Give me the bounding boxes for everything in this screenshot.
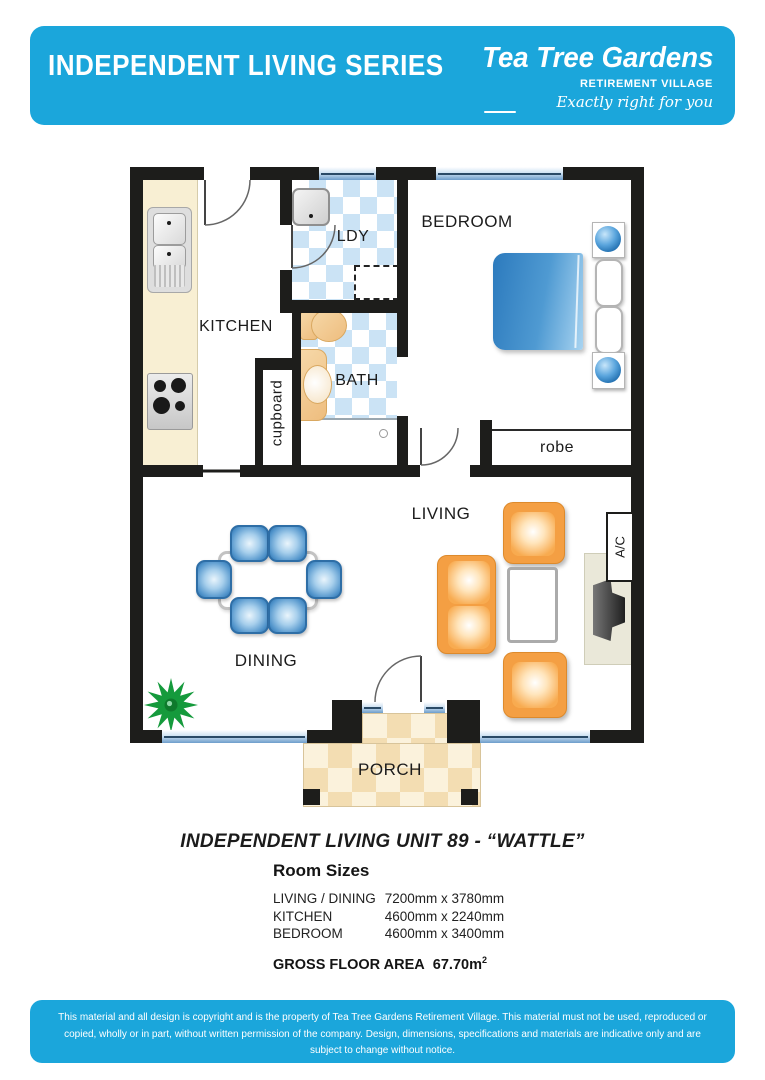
room-label-laundry: LDY [337,228,370,246]
wall-segment [280,300,408,313]
dining-window [162,730,307,743]
lamp-icon [595,226,621,252]
bedside-table [595,259,623,307]
room-size-row: BEDROOM 4600mm x 3400mm [273,925,504,943]
coffee-table [507,567,558,643]
armchair [503,502,565,564]
page-title: INDEPENDENT LIVING SERIES [48,50,444,83]
room-label-kitchen: KITCHEN [199,318,273,336]
robe-wall-stub [480,420,492,465]
header-banner: INDEPENDENT LIVING SERIES Tea Tree Garde… [30,26,735,125]
room-label-robe: robe [540,439,574,457]
window-line [482,736,588,738]
room-size-name: LIVING / DINING [273,890,381,908]
window-line [426,707,443,709]
burner-icon [154,380,166,392]
washing-machine [292,188,330,226]
burner-icon [175,401,185,411]
kitchen-sink [147,207,192,293]
porch-corner-post [303,789,320,805]
bedroom-door-arc [421,428,458,465]
logo-name: Tea Tree Gardens [482,42,713,75]
wall-segment [376,167,436,180]
ac-label: A/C [613,536,628,558]
bedroom-window [436,167,563,180]
porch-entry-floor [362,713,449,745]
wall-right [631,167,644,743]
washer-knob [309,214,313,218]
entry-sidelight-window [424,702,445,713]
dining-chair [268,597,307,634]
wall-segment [292,313,301,465]
entry-door-arc [375,656,421,702]
wall-segment [130,730,162,743]
room-label-dining: DINING [235,651,298,671]
dining-chair [196,560,232,599]
tv-icon [593,579,625,641]
dining-chair [306,560,342,599]
wall-segment [240,465,420,477]
dining-chair [230,525,269,562]
window-line [321,173,374,175]
room-size-value: 7200mm x 3780mm [385,891,504,906]
shower-drain [379,429,388,438]
burner-icon [171,378,186,393]
gross-floor-area: GROSS FLOOR AREA 67.70m2 [273,955,487,973]
wall-segment [280,180,292,225]
room-size-value: 4600mm x 3400mm [385,926,504,941]
brochure-page: INDEPENDENT LIVING SERIES Tea Tree Garde… [0,0,765,1080]
window-line [164,736,305,738]
footer-banner: This material and all design is copyrigh… [30,1000,735,1063]
room-size-name: BEDROOM [273,925,381,943]
wash-basin [303,365,332,404]
sofa-cushion [448,561,490,604]
wall-segment [250,167,319,180]
toilet-bowl [311,309,347,342]
armchair [503,652,567,718]
room-size-row: LIVING / DINING 7200mm x 3780mm [273,890,504,908]
shower-base [301,418,397,467]
hot-water-unit [354,265,399,300]
entry-sidelight-window [362,702,383,713]
burner-icon [153,397,170,414]
room-label-bedroom: BEDROOM [421,212,512,232]
bedside-lamp [592,352,625,389]
wall-segment [255,358,263,465]
disclaimer-text: This material and all design is copyrigh… [56,1010,709,1060]
gross-superscript: 2 [482,955,487,965]
room-size-row: KITCHEN 4600mm x 2240mm [273,908,504,926]
bedside-lamp [592,222,625,258]
wall-segment [397,416,408,465]
unit-title: INDEPENDENT LIVING UNIT 89 - “WATTLE” [0,831,765,853]
porch-post [447,700,480,743]
dining-chair [230,597,269,634]
wall-left [130,167,143,743]
bed [493,253,583,350]
sink-bowl [153,213,186,245]
room-sizes-heading: Room Sizes [273,861,369,881]
room-label-cupboard: cupboard [269,380,286,447]
sink-drainer [154,265,185,287]
sofa-cushion [448,606,490,649]
gross-value: 67.70m [433,957,482,973]
air-conditioner: A/C [606,512,634,582]
porch-post [332,700,362,743]
room-size-value: 4600mm x 2240mm [385,909,504,924]
room-label-porch: PORCH [358,760,422,780]
porch-corner-post [461,789,478,805]
window-line [364,707,381,709]
wall-segment [397,180,408,357]
laundry-window [319,167,376,180]
room-label-living: LIVING [412,504,471,524]
wall-segment [470,465,644,477]
room-size-name: KITCHEN [273,908,381,926]
dining-chair [268,525,307,562]
cooktop [147,373,193,430]
room-label-bath: BATH [335,372,378,390]
bedside-table [595,306,623,354]
tagline-flourish [484,111,516,113]
logo-subtitle: RETIREMENT VILLAGE [470,78,713,90]
living-window [480,730,590,743]
sofa [437,555,496,654]
room-sizes-table: LIVING / DINING 7200mm x 3780mm KITCHEN … [273,890,504,943]
wall-segment [130,465,203,477]
tap-icon [167,252,171,256]
armchair-cushion [511,512,555,556]
tap-icon [167,221,171,225]
logo-tagline-text: Exactly right for you [556,93,713,111]
lamp-icon [595,357,621,383]
window-line [438,173,561,175]
logo: Tea Tree Gardens RETIREMENT VILLAGE Exac… [470,42,713,111]
bed-fold-line [574,255,579,348]
gross-label: GROSS FLOOR AREA [273,957,425,973]
kitchen-door-arc [205,180,250,225]
plant-icon [143,677,199,733]
armchair-cushion [512,662,558,708]
wall-segment [590,730,644,743]
logo-tagline: Exactly right for you [470,93,713,111]
